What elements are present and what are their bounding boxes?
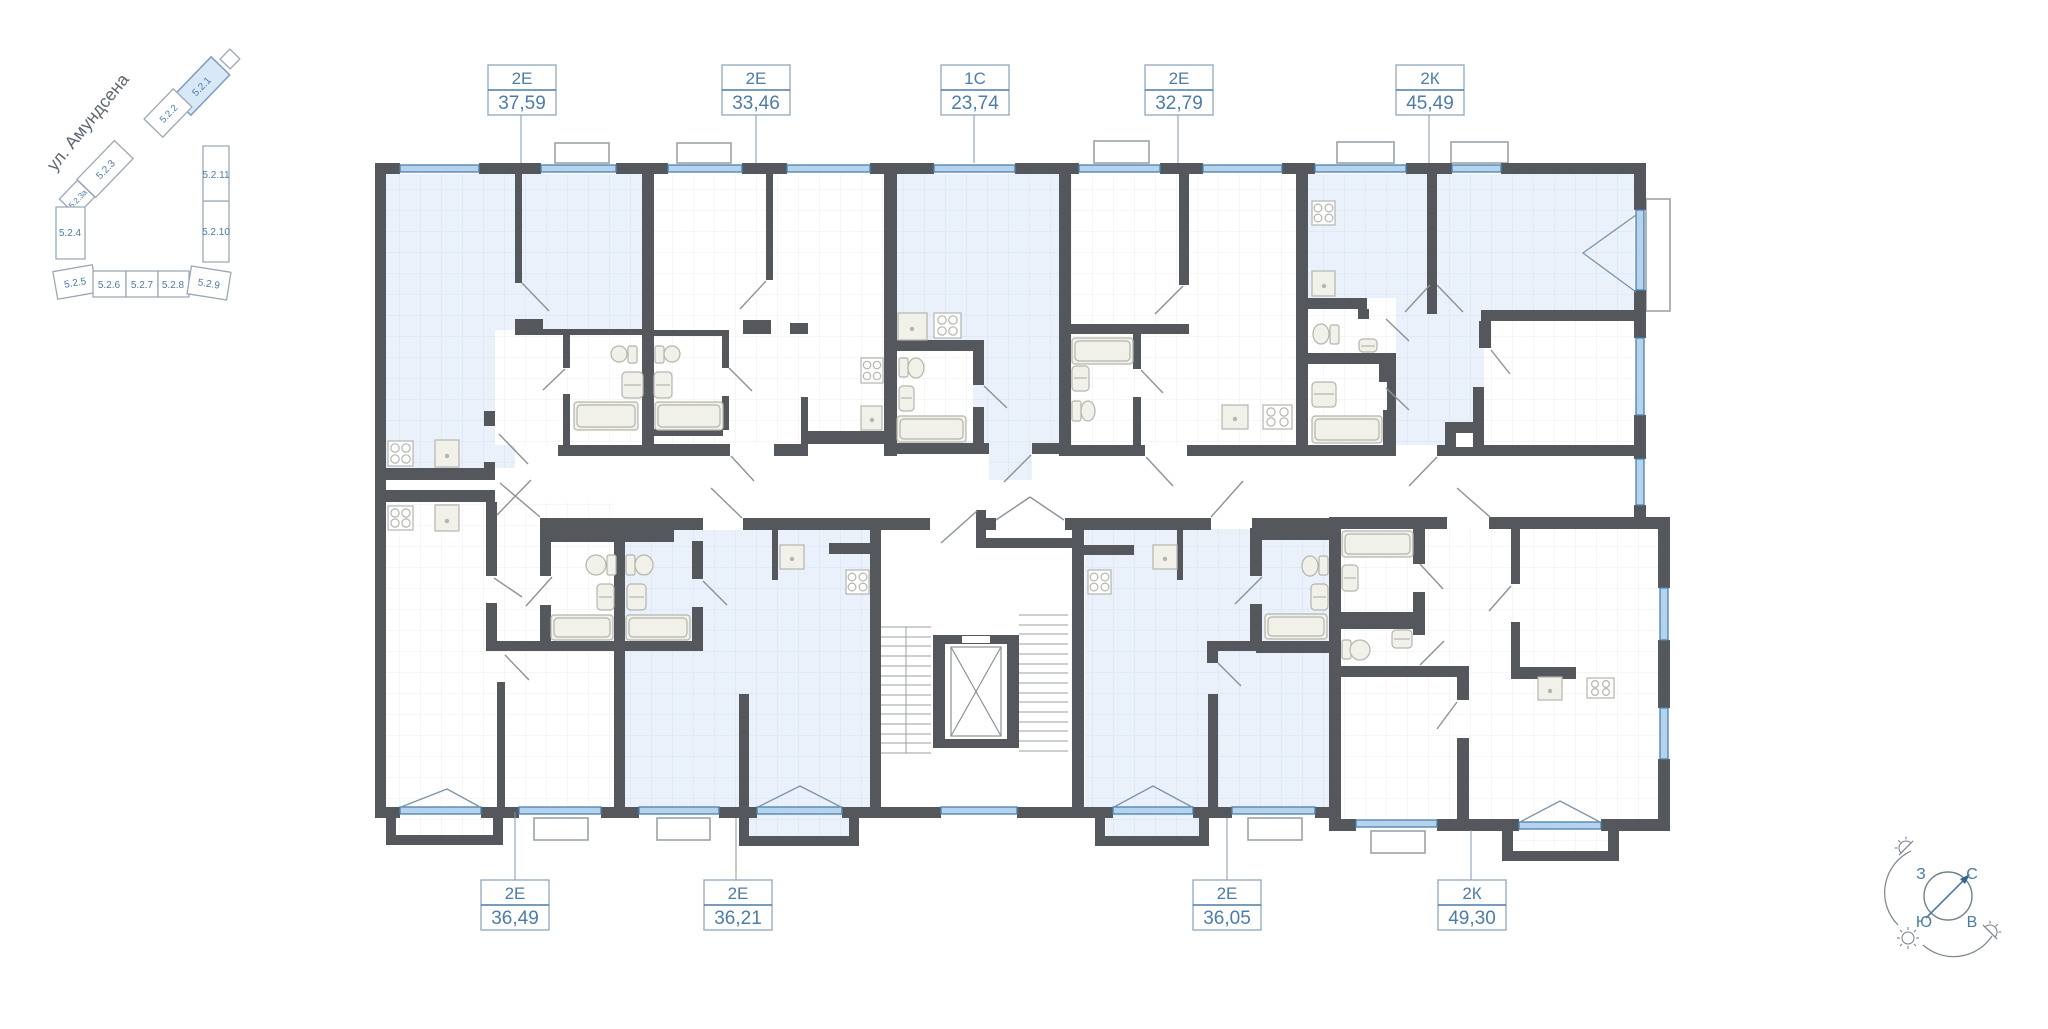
svg-text:36,05: 36,05: [1203, 908, 1251, 929]
svg-text:В: В: [1967, 914, 1978, 931]
svg-text:23,74: 23,74: [951, 93, 999, 114]
svg-text:49,30: 49,30: [1448, 908, 1496, 929]
svg-text:5.2.8: 5.2.8: [162, 280, 185, 291]
svg-text:2Е: 2Е: [505, 884, 526, 903]
svg-text:36,21: 36,21: [714, 908, 762, 929]
svg-text:33,46: 33,46: [732, 93, 780, 114]
svg-text:45,49: 45,49: [1406, 93, 1454, 114]
svg-text:37,59: 37,59: [498, 93, 546, 114]
svg-text:5.2.7: 5.2.7: [131, 280, 154, 291]
svg-text:5.2.4: 5.2.4: [59, 228, 82, 239]
svg-text:Ю: Ю: [1916, 914, 1932, 931]
svg-text:2К: 2К: [1462, 884, 1481, 903]
svg-text:1С: 1С: [964, 69, 986, 88]
svg-text:З: З: [1916, 866, 1926, 883]
svg-text:5.2.6: 5.2.6: [98, 280, 121, 291]
svg-text:2Е: 2Е: [728, 884, 749, 903]
svg-text:2Е: 2Е: [512, 69, 533, 88]
svg-text:5.2.10: 5.2.10: [202, 227, 230, 238]
svg-text:36,49: 36,49: [491, 908, 539, 929]
svg-text:2Е: 2Е: [1217, 884, 1238, 903]
svg-text:С: С: [1966, 866, 1978, 883]
svg-text:2К: 2К: [1420, 69, 1439, 88]
svg-text:2Е: 2Е: [746, 69, 767, 88]
svg-text:5.2.11: 5.2.11: [202, 170, 229, 181]
svg-text:2Е: 2Е: [1169, 69, 1190, 88]
svg-text:32,79: 32,79: [1155, 93, 1203, 114]
